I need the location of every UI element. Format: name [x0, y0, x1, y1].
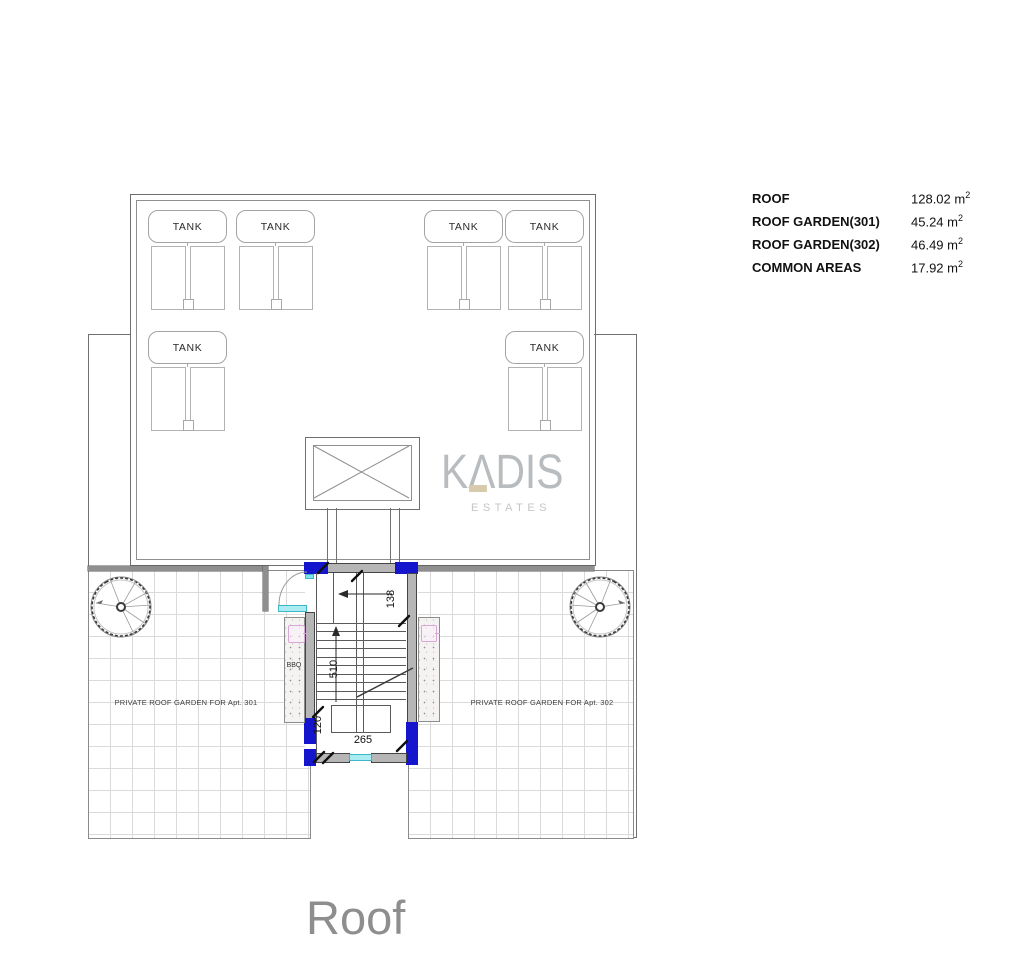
- solar-panel-right: [278, 246, 313, 310]
- dim-138: 138: [385, 582, 397, 616]
- panel-connector: [540, 299, 551, 310]
- tank-panels: [508, 246, 582, 310]
- legend-label: ROOF GARDEN(302): [752, 237, 911, 252]
- fixture-symbol-left: [288, 625, 305, 643]
- legend-value: 17.92 m: [911, 260, 958, 275]
- legend-label: COMMON AREAS: [752, 260, 911, 275]
- tank-label: TANK: [173, 221, 203, 233]
- area-legend: ROOF128.02 m2 ROOF GARDEN(301)45.24 m2 R…: [752, 190, 992, 282]
- bottom-door-sill: [349, 754, 372, 761]
- panel-connector: [271, 299, 282, 310]
- tank-panels: [427, 246, 501, 310]
- top-door-sill: [305, 574, 314, 579]
- panel-connector: [540, 420, 551, 431]
- legend-row: ROOF GARDEN(301)45.24 m2: [752, 213, 992, 236]
- stair-tread: [317, 640, 406, 641]
- tank-label-box: TANK: [148, 210, 227, 243]
- roof-floor-plan: TANK TANK TANK TANK: [0, 0, 1024, 971]
- solar-panel-left: [427, 246, 462, 310]
- shaft-wall-line: [336, 508, 337, 564]
- legend-row: ROOF GARDEN(302)46.49 m2: [752, 236, 992, 259]
- tank-unit-4: TANK: [505, 210, 584, 310]
- solar-panel-left: [239, 246, 274, 310]
- legend-label: ROOF: [752, 191, 911, 206]
- fixture-symbol-right: [421, 625, 437, 642]
- dim-265: 265: [346, 734, 380, 746]
- tank-label: TANK: [261, 221, 291, 233]
- tank-label-box: TANK: [505, 210, 584, 243]
- garden-302-label: PRIVATE ROOF GARDEN FOR Apt. 302: [452, 698, 632, 707]
- stair-tread: [317, 623, 406, 624]
- logo-letter-a: Λ: [468, 449, 495, 497]
- tank-label-box: TANK: [236, 210, 315, 243]
- stair-tread: [317, 648, 406, 649]
- column-bottom-left: [304, 749, 316, 766]
- legend-row: COMMON AREAS17.92 m2: [752, 259, 992, 282]
- tank-panels: [508, 367, 582, 431]
- stair-line-upper: [333, 573, 334, 623]
- legend-value: 46.49 m: [911, 237, 958, 252]
- solar-panel-right: [466, 246, 501, 310]
- panel-connector: [183, 420, 194, 431]
- shaft-wall-line: [390, 508, 391, 564]
- logo-accent-bar: [469, 485, 487, 492]
- shaft-wall-line: [399, 508, 400, 564]
- right-garden-top-wall: [418, 566, 594, 571]
- column-bottom-right: [406, 722, 418, 765]
- solar-panel-right: [547, 246, 582, 310]
- legend-value: 45.24 m: [911, 214, 958, 229]
- logo-estates-text: ESTATES: [471, 502, 581, 514]
- stairwell-bottom-wall-left: [316, 753, 350, 763]
- tank-panels: [239, 246, 313, 310]
- right-wing-outer-line: [636, 334, 637, 838]
- tank-label: TANK: [173, 342, 203, 354]
- garden-301-label: PRIVATE ROOF GARDEN FOR Apt. 301: [96, 698, 276, 707]
- kadis-logo-text: KΛDIS: [441, 449, 560, 497]
- stairwell-bottom-wall-right: [371, 753, 407, 763]
- bbq-label: BBQ: [282, 662, 306, 669]
- solar-panel-left: [508, 246, 543, 310]
- logo-letters-dis: DIS: [495, 446, 563, 499]
- dim-510: 510: [328, 652, 340, 686]
- tank-panels: [151, 367, 225, 431]
- elevator-car: [313, 445, 412, 501]
- legend-row: ROOF128.02 m2: [752, 190, 992, 213]
- tank-unit-1: TANK: [148, 210, 227, 310]
- tank-label-box: TANK: [505, 331, 584, 364]
- panel-connector: [183, 299, 194, 310]
- solar-panel-right: [190, 246, 225, 310]
- tank-label: TANK: [530, 342, 560, 354]
- stairwell-right-wall: [407, 573, 417, 723]
- tank-label: TANK: [530, 221, 560, 233]
- left-wing-top-line: [88, 334, 131, 335]
- left-garden-wall-jog: [263, 566, 268, 611]
- tank-label: TANK: [449, 221, 479, 233]
- stair-tread: [317, 631, 406, 632]
- solar-panel-left: [151, 246, 186, 310]
- legend-label: ROOF GARDEN(301): [752, 214, 911, 229]
- solar-panel-left: [151, 367, 186, 431]
- kadis-watermark: KΛDIS ESTATES: [441, 449, 581, 514]
- tank-unit-2: TANK: [236, 210, 315, 310]
- left-garden-top-wall: [88, 566, 267, 571]
- legend-unit-exp: 2: [958, 259, 963, 269]
- solar-panel-right: [547, 367, 582, 431]
- drawing-title: Roof: [306, 890, 405, 945]
- legend-unit-exp: 2: [958, 213, 963, 223]
- stair-tread: [317, 699, 406, 700]
- tank-label-box: TANK: [148, 331, 227, 364]
- legend-value: 128.02 m: [911, 191, 965, 206]
- panel-connector: [459, 299, 470, 310]
- stair-landing: [331, 705, 391, 733]
- shaft-wall-line: [327, 508, 328, 564]
- right-wing-top-line: [594, 334, 637, 335]
- tank-unit-5: TANK: [148, 331, 227, 431]
- legend-unit-exp: 2: [958, 236, 963, 246]
- garden-door-leaf: [278, 605, 307, 612]
- dim-120: 120: [312, 708, 324, 742]
- logo-letter-k: K: [441, 446, 468, 499]
- tank-label-box: TANK: [424, 210, 503, 243]
- tank-unit-6: TANK: [505, 331, 584, 431]
- stair-tread: [317, 691, 406, 692]
- solar-panel-left: [508, 367, 543, 431]
- legend-unit-exp: 2: [965, 190, 970, 200]
- tank-panels: [151, 246, 225, 310]
- tank-unit-3: TANK: [424, 210, 503, 310]
- solar-panel-right: [190, 367, 225, 431]
